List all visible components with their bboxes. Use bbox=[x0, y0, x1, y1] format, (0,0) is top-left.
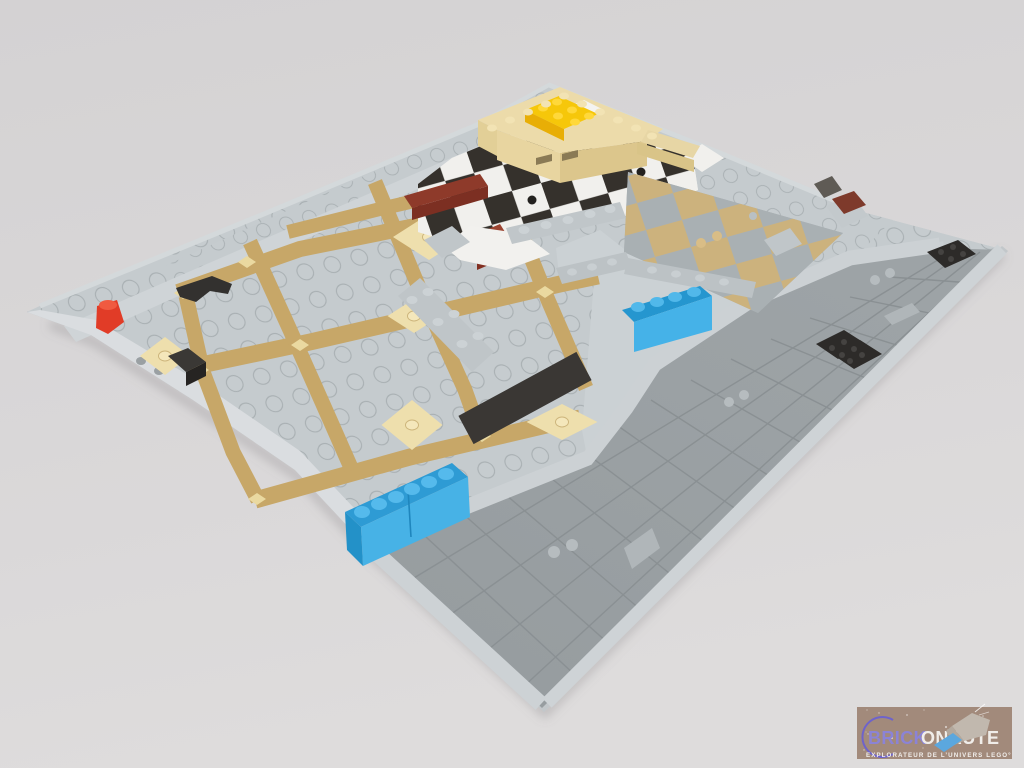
svg-text:BRICK: BRICK bbox=[868, 728, 927, 748]
svg-text:EXPLORATEUR DE L’UNIVERS LEGO°: EXPLORATEUR DE L’UNIVERS LEGO° bbox=[866, 752, 1012, 759]
